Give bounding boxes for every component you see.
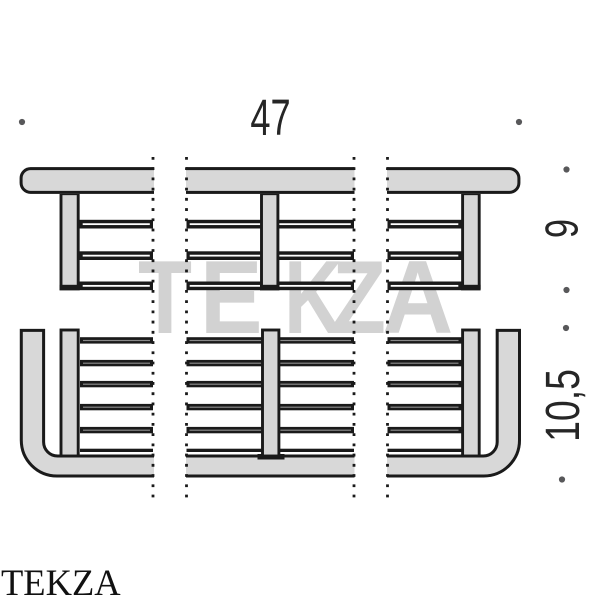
svg-text:9: 9 [536,219,588,238]
svg-text:47: 47 [250,90,290,147]
svg-text:TEKZA: TEKZA [1,562,121,600]
svg-text:10,5: 10,5 [537,369,591,442]
